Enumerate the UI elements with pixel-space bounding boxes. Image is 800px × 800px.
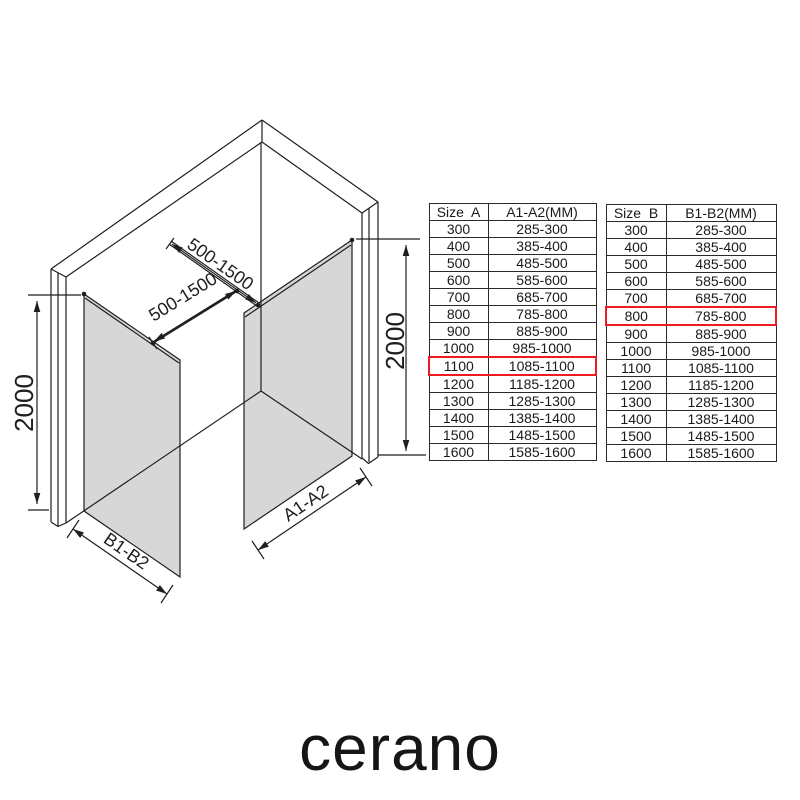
range-cell: 285-300 — [488, 221, 596, 238]
range-cell: 685-700 — [488, 289, 596, 306]
size-cell: 1600 — [606, 445, 666, 462]
size-cell: 1100 — [429, 357, 488, 375]
range-cell: 1285-1300 — [666, 394, 776, 411]
size-cell: 1400 — [606, 411, 666, 428]
range-cell: 1385-1400 — [666, 411, 776, 428]
table-row: 700 685-700 — [606, 290, 776, 308]
range-cell: 485-500 — [666, 256, 776, 273]
size-a-header-cell: Size A — [429, 204, 488, 221]
size-cell: 1000 — [429, 340, 488, 358]
range-cell: 585-600 — [666, 273, 776, 290]
size-cell: 700 — [429, 289, 488, 306]
size-cell: 1400 — [429, 410, 488, 427]
range-cell: 285-300 — [666, 222, 776, 239]
table-row: 1200 1185-1200 — [429, 375, 596, 393]
range-cell: 1485-1500 — [488, 427, 596, 444]
table-row: 500 485-500 — [429, 255, 596, 272]
size-cell: 800 — [606, 307, 666, 325]
size-cell: 400 — [429, 238, 488, 255]
range-cell: 985-1000 — [488, 340, 596, 358]
size-cell: 300 — [606, 222, 666, 239]
table-row: 800 785-800 — [606, 307, 776, 325]
bar-lower-dimension-label: 500-1500 — [145, 268, 220, 325]
range-cell: 1085-1100 — [488, 357, 596, 375]
table-row: 900 885-900 — [606, 325, 776, 343]
range-a-header-cell: A1-A2(MM) — [488, 204, 596, 221]
table-row: 1500 1485-1500 — [429, 427, 596, 444]
range-cell: 885-900 — [488, 323, 596, 340]
range-cell: 785-800 — [666, 307, 776, 325]
table-row: 1600 1585-1600 — [606, 445, 776, 462]
dimension-height-right: 2000 — [356, 239, 426, 455]
range-cell: 1585-1600 — [488, 444, 596, 461]
range-cell: 1185-1200 — [488, 375, 596, 393]
range-cell: 985-1000 — [666, 343, 776, 360]
table-row: 1500 1485-1500 — [606, 428, 776, 445]
size-cell: 600 — [606, 273, 666, 290]
table-row: 1000 985-1000 — [429, 340, 596, 358]
range-cell: 585-600 — [488, 272, 596, 289]
size-table-a-header: Size A A1-A2(MM) — [429, 204, 596, 221]
size-cell: 500 — [606, 256, 666, 273]
table-row: 900 885-900 — [429, 323, 596, 340]
table-row: 800 785-800 — [429, 306, 596, 323]
dimension-height-left: 2000 — [9, 295, 81, 510]
glass-panel-left-face — [84, 294, 180, 577]
table-row: 400 385-400 — [606, 239, 776, 256]
size-cell: 700 — [606, 290, 666, 308]
table-row: 300 285-300 — [429, 221, 596, 238]
size-cell: 1500 — [429, 427, 488, 444]
table-row: 1300 1285-1300 — [606, 394, 776, 411]
glass-panel-right — [244, 240, 352, 529]
glass-panel-right-face — [244, 240, 352, 529]
size-cell: 600 — [429, 272, 488, 289]
size-cell: 400 — [606, 239, 666, 256]
size-cell: 1200 — [606, 377, 666, 394]
table-row: 1400 1385-1400 — [429, 410, 596, 427]
size-cell: 1300 — [429, 393, 488, 410]
size-cell: 800 — [429, 306, 488, 323]
table-row: 1100 1085-1100 — [429, 357, 596, 375]
size-table-b-header: Size B B1-B2(MM) — [606, 205, 776, 222]
range-cell: 1285-1300 — [488, 393, 596, 410]
size-cell: 1500 — [606, 428, 666, 445]
table-row: 300 285-300 — [606, 222, 776, 239]
size-cell: 1200 — [429, 375, 488, 393]
size-table-b: Size B B1-B2(MM) 300 285-300 400 385-400… — [605, 204, 777, 462]
table-row: 1000 985-1000 — [606, 343, 776, 360]
size-cell: 1000 — [606, 343, 666, 360]
range-cell: 685-700 — [666, 290, 776, 308]
size-cell: 1600 — [429, 444, 488, 461]
range-cell: 1085-1100 — [666, 360, 776, 377]
table-row: 1300 1285-1300 — [429, 393, 596, 410]
table-row: 1100 1085-1100 — [606, 360, 776, 377]
range-cell: 1485-1500 — [666, 428, 776, 445]
table-row: 1200 1185-1200 — [606, 377, 776, 394]
range-cell: 485-500 — [488, 255, 596, 272]
size-cell: 1100 — [606, 360, 666, 377]
product-sheet: 500-1500 500-1500 2000 — [0, 0, 800, 800]
table-row: 600 585-600 — [606, 273, 776, 290]
size-cell: 900 — [429, 323, 488, 340]
range-cell: 1185-1200 — [666, 377, 776, 394]
range-cell: 1585-1600 — [666, 445, 776, 462]
range-cell: 885-900 — [666, 325, 776, 343]
table-row: 1600 1585-1600 — [429, 444, 596, 461]
size-cell: 900 — [606, 325, 666, 343]
size-cell: 300 — [429, 221, 488, 238]
glass-panel-left — [84, 294, 180, 577]
table-row: 400 385-400 — [429, 238, 596, 255]
range-cell: 385-400 — [666, 239, 776, 256]
table-row: 1400 1385-1400 — [606, 411, 776, 428]
brand-logo: cerano — [0, 716, 800, 780]
height-left-label: 2000 — [9, 374, 39, 432]
table-row: 500 485-500 — [606, 256, 776, 273]
size-table-a: Size A A1-A2(MM) 300 285-300 400 385-400… — [428, 203, 597, 461]
table-row: 600 585-600 — [429, 272, 596, 289]
size-cell: 1300 — [606, 394, 666, 411]
range-cell: 785-800 — [488, 306, 596, 323]
size-cell: 500 — [429, 255, 488, 272]
range-b-header-cell: B1-B2(MM) — [666, 205, 776, 222]
table-row: 700 685-700 — [429, 289, 596, 306]
range-cell: 1385-1400 — [488, 410, 596, 427]
size-b-header-cell: Size B — [606, 205, 666, 222]
height-right-label: 2000 — [380, 312, 410, 370]
range-cell: 385-400 — [488, 238, 596, 255]
